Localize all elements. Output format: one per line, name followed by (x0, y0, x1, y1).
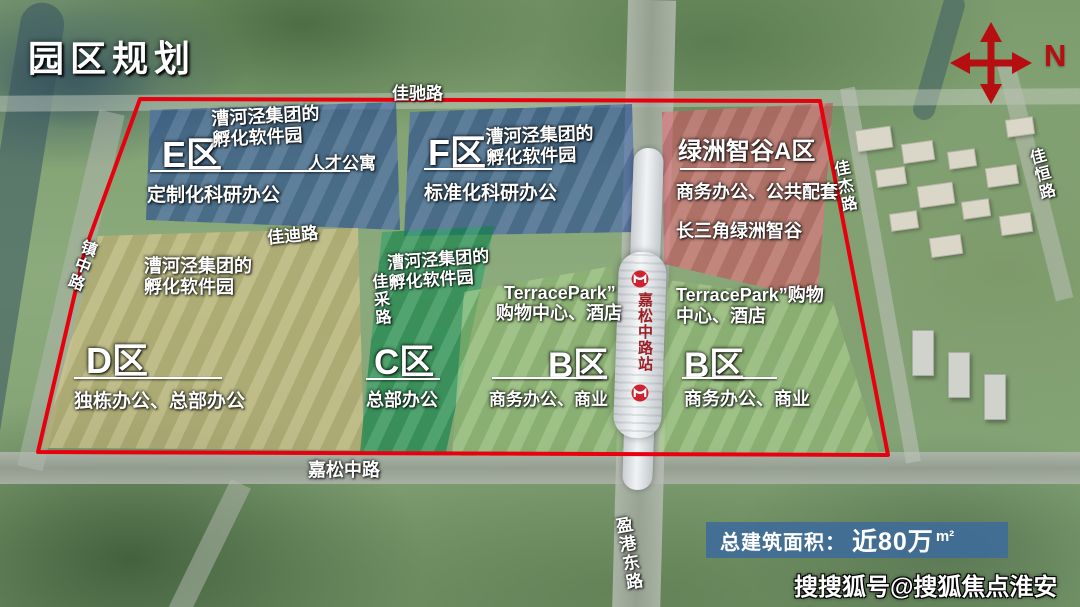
zone-b2-retail: TerracePark”购物 中心、酒店 (676, 285, 824, 327)
zone-c-desc: 总部办公 (366, 386, 438, 412)
offsite-tower (948, 352, 970, 398)
zone-b1-name: B区 (548, 337, 608, 388)
zone-e-org: 漕河泾集团的 孵化软件园 (211, 103, 321, 151)
zone-b2-desc: 商务办公、商业 (684, 385, 810, 411)
offsite-building (999, 212, 1033, 236)
zone-d-desc: 独栋办公、总部办公 (74, 386, 245, 413)
road-label-jiadi: 佳迪路 (266, 218, 319, 248)
site-plan: 嘉松中路站 E区 漕河泾集团的 孵化软件园 人才公寓 定制化科研办公 F区 漕河… (0, 0, 1080, 607)
zone-f-org: 漕河泾集团的 孵化软件园 (485, 123, 594, 169)
watermark: 搜搜狐号@搜狐焦点淮安站 (794, 567, 1080, 607)
zone-d-org-line2: 孵化软件园 (144, 277, 252, 298)
offsite-building (1005, 116, 1035, 138)
zone-b2-retail-line2: 中心、酒店 (676, 306, 824, 327)
zone-d-org-line1: 漕河泾集团的 (144, 256, 252, 277)
stats-value: 近80万 (852, 522, 934, 558)
road-label-jiaheng: 佳恒路 (1021, 146, 1058, 204)
zone-b2-divider (682, 377, 777, 379)
road-label-jiacai: 佳采路 (365, 272, 394, 328)
zone-f-desc: 标准化科研办公 (424, 178, 557, 205)
zone-b2-name: B区 (684, 337, 744, 388)
stats-banner: 总建筑面积： 近80万 m² (706, 522, 1008, 558)
zone-a-name: 绿洲智谷A区 (678, 131, 815, 166)
zone-b1-retail-line1: TerracePark” (496, 283, 622, 303)
road-label-jiachi: 佳驰路 (392, 79, 443, 104)
stats-unit: m² (936, 522, 954, 545)
stats-label: 总建筑面积： (720, 526, 846, 555)
zone-b1-retail: TerracePark” 购物中心、酒店 (496, 283, 622, 323)
zone-b1-desc: 商务办公、商业 (489, 385, 608, 410)
zone-c-divider (366, 378, 440, 380)
offsite-building (889, 210, 919, 232)
zone-b1-retail-line2: 购物中心、酒店 (496, 303, 622, 323)
compass-cross-icon (948, 20, 1034, 106)
zone-a-tag: 长三角绿洲智谷 (676, 217, 802, 243)
offsite-building (929, 234, 963, 258)
zone-f-divider (424, 168, 552, 170)
zone-e-divider (150, 170, 350, 172)
offsite-building (901, 140, 935, 164)
offsite-tower (984, 374, 1006, 420)
zone-c-org: 漕河泾集团的 孵化软件园 (387, 246, 492, 293)
road-bottom-left (163, 479, 251, 607)
road-label-jiasong: 嘉松中路 (308, 456, 380, 482)
zone-a-desc: 商务办公、公共配套 (676, 178, 838, 204)
zone-e-desc: 定制化科研办公 (147, 180, 280, 207)
zone-d-divider (74, 377, 222, 379)
offsite-building (985, 164, 1019, 188)
offsite-building (947, 148, 977, 170)
offsite-tower (912, 330, 934, 376)
zone-d-org: 漕河泾集团的 孵化软件园 (144, 256, 252, 298)
zone-a-divider (680, 168, 785, 170)
compass: N (948, 20, 1078, 110)
zone-b2-retail-line1: TerracePark”购物 (676, 285, 824, 306)
offsite-building (855, 126, 894, 153)
metro-logo-icon (631, 270, 649, 288)
zone-f-org-line2: 孵化软件园 (486, 144, 595, 169)
offsite-building (917, 182, 956, 209)
page-title: 园区规划 (28, 30, 196, 82)
station-name: 嘉松中路站 (634, 292, 655, 380)
metro-logo-icon (631, 384, 649, 402)
zone-b1-divider (492, 377, 602, 379)
offsite-building (875, 166, 907, 188)
compass-n-label: N (1044, 38, 1066, 74)
offsite-building (961, 198, 991, 220)
zone-f-org-line1: 漕河泾集团的 (485, 123, 594, 148)
